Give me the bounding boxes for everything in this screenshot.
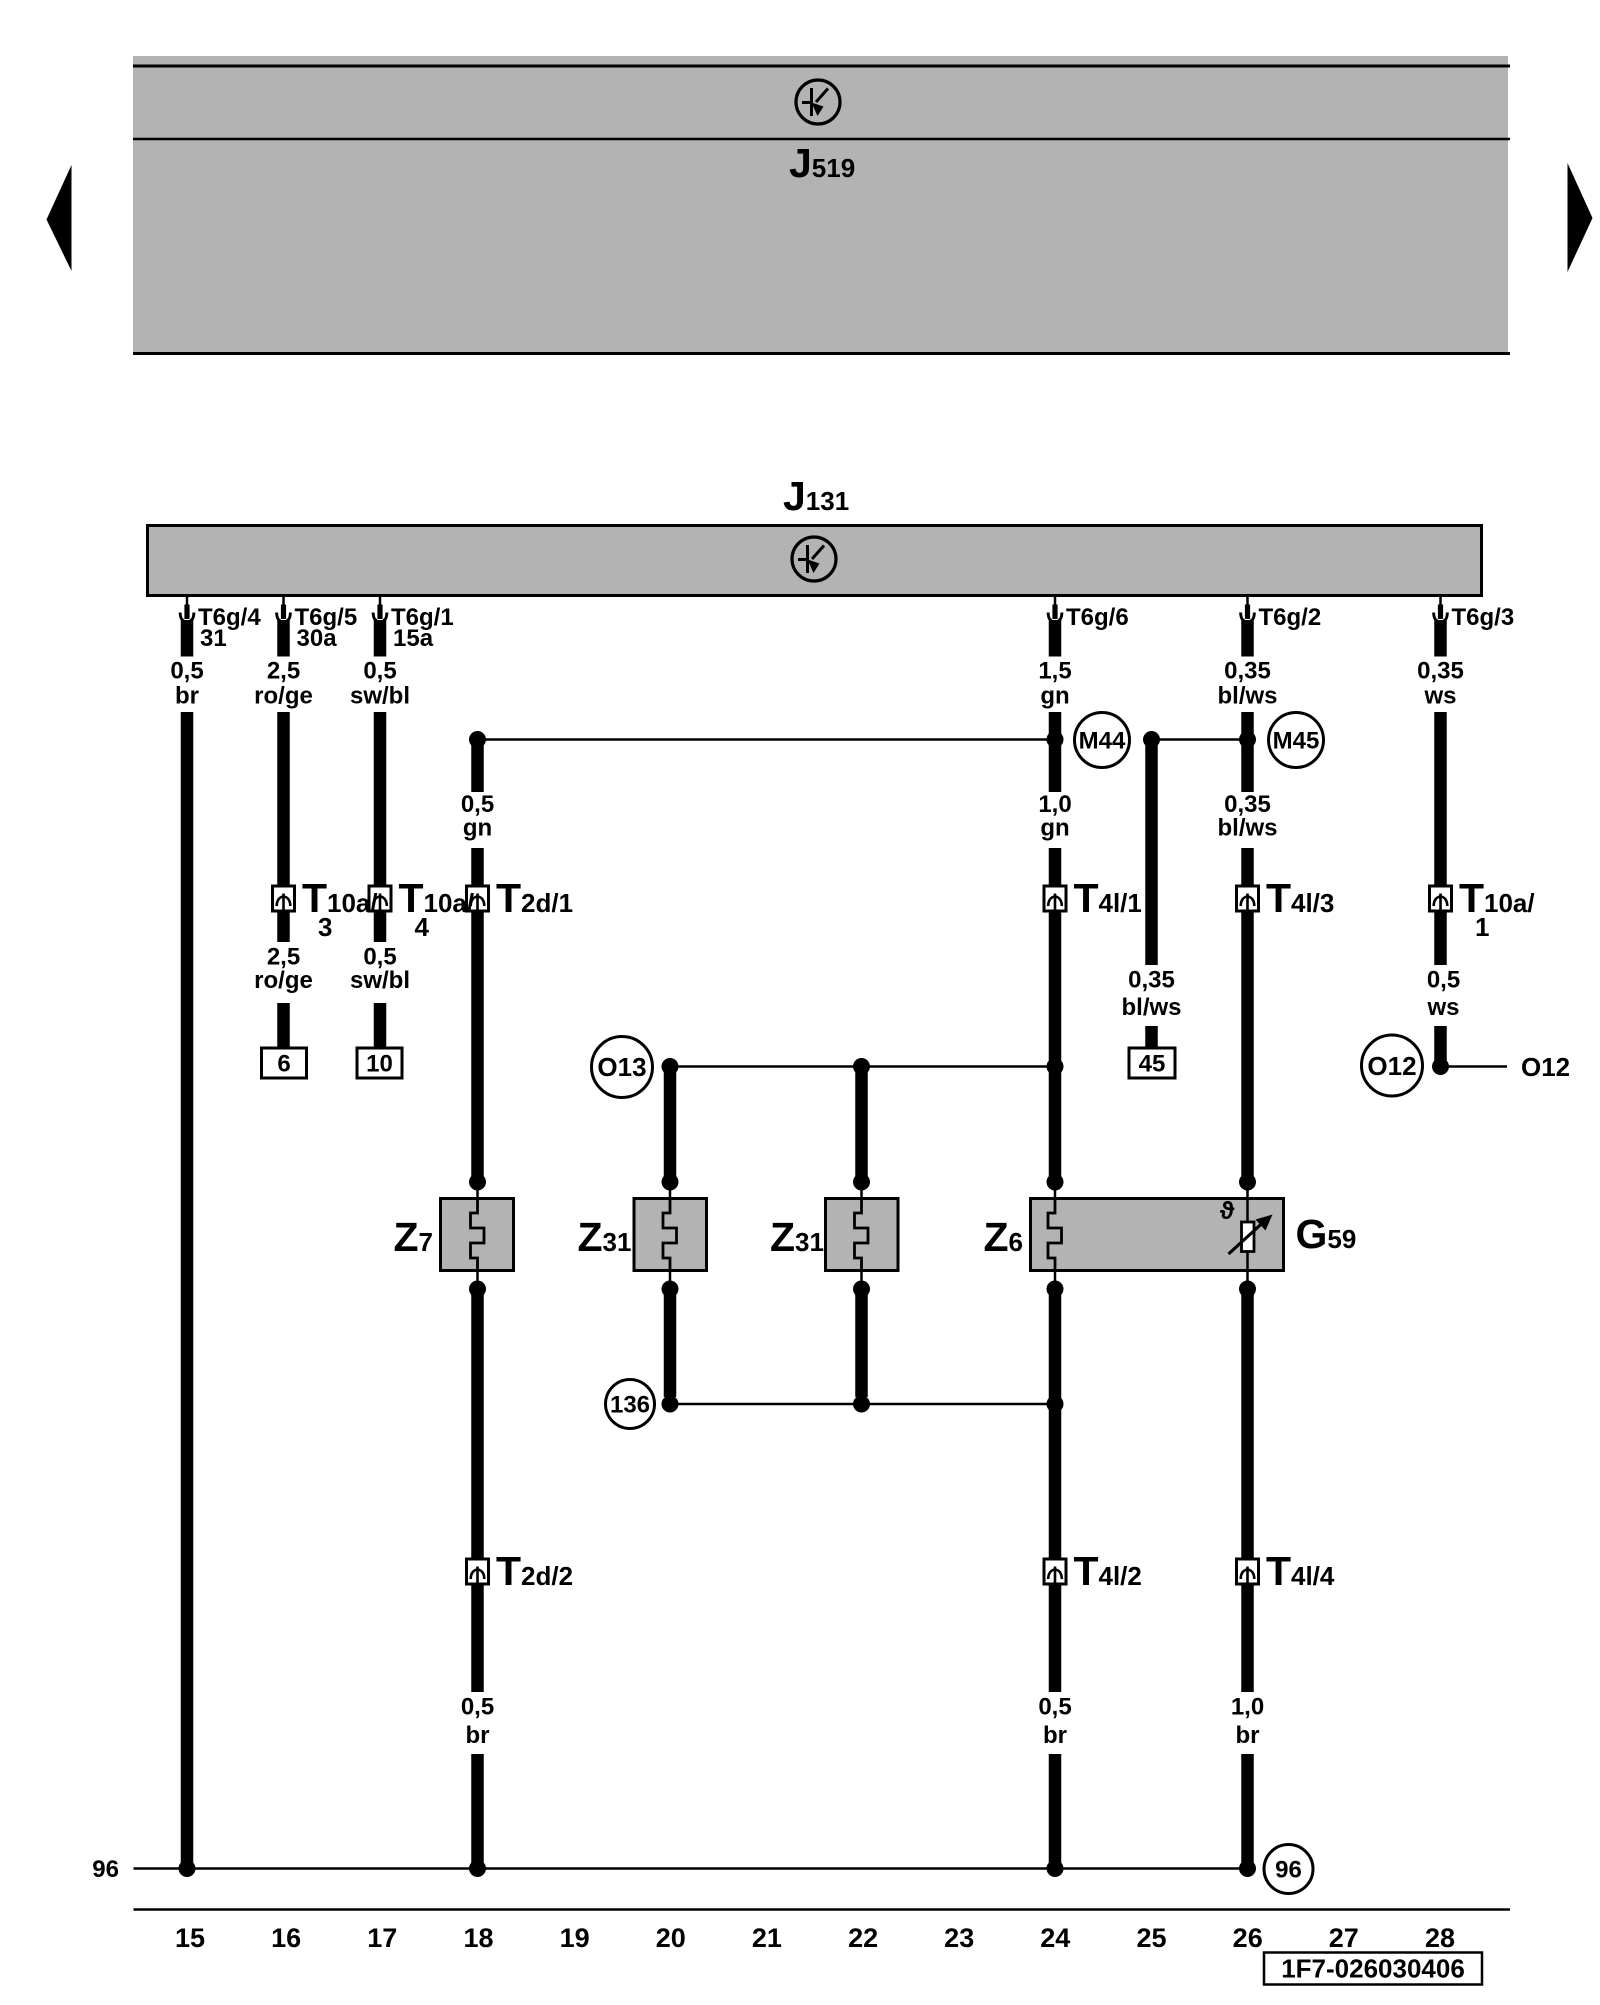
svg-text:ro/ge: ro/ge (254, 967, 313, 994)
svg-text:15: 15 (175, 1923, 205, 1953)
svg-text:25: 25 (1136, 1923, 1166, 1953)
svg-text:T: T (496, 1548, 521, 1594)
svg-text:21: 21 (752, 1923, 782, 1953)
svg-text:gn: gn (463, 815, 492, 842)
svg-text:4l/2: 4l/2 (1099, 1561, 1142, 1591)
svg-text:sw/bl: sw/bl (350, 967, 410, 994)
svg-text:T6g/6: T6g/6 (1066, 604, 1129, 631)
svg-text:J: J (789, 140, 812, 186)
svg-text:4: 4 (415, 912, 430, 942)
svg-text:3: 3 (318, 912, 332, 942)
svg-text:27: 27 (1329, 1923, 1359, 1953)
svg-text:6: 6 (1009, 1227, 1023, 1257)
svg-text:4l/1: 4l/1 (1099, 888, 1142, 918)
svg-text:G: G (1296, 1211, 1328, 1257)
svg-text:bl/ws: bl/ws (1217, 815, 1277, 842)
svg-text:59: 59 (1327, 1224, 1356, 1254)
svg-text:4l/3: 4l/3 (1291, 888, 1334, 918)
svg-text:1: 1 (1475, 912, 1489, 942)
svg-text:ws: ws (1426, 994, 1459, 1021)
svg-text:28: 28 (1425, 1923, 1455, 1953)
svg-text:1,5: 1,5 (1038, 658, 1071, 685)
svg-text:ϑ: ϑ (1220, 1197, 1235, 1225)
svg-text:0,5: 0,5 (1038, 1694, 1071, 1721)
svg-text:26: 26 (1233, 1923, 1263, 1953)
svg-text:T: T (1266, 1548, 1291, 1594)
svg-text:ws: ws (1423, 683, 1456, 710)
svg-text:0,5: 0,5 (461, 1694, 494, 1721)
svg-text:T: T (1074, 1548, 1099, 1594)
svg-text:sw/bl: sw/bl (350, 683, 410, 710)
svg-text:T: T (1074, 875, 1099, 921)
svg-text:16: 16 (271, 1923, 301, 1953)
svg-text:M45: M45 (1273, 728, 1320, 755)
svg-text:18: 18 (463, 1923, 493, 1953)
svg-text:10a/: 10a/ (1484, 888, 1535, 918)
svg-text:O12: O12 (1367, 1051, 1416, 1081)
svg-text:1F7-026030406: 1F7-026030406 (1281, 1954, 1465, 1984)
svg-text:J: J (783, 473, 806, 519)
svg-text:19: 19 (560, 1923, 590, 1953)
svg-text:br: br (1043, 1722, 1067, 1749)
svg-text:Z: Z (770, 1214, 795, 1260)
svg-text:br: br (1236, 1722, 1260, 1749)
svg-text:10a/: 10a/ (424, 888, 475, 918)
svg-text:45: 45 (1139, 1051, 1166, 1078)
svg-text:T: T (496, 875, 521, 921)
svg-text:15a: 15a (393, 625, 434, 652)
svg-text:0,5: 0,5 (363, 658, 396, 685)
svg-text:2d/2: 2d/2 (521, 1561, 573, 1591)
svg-text:6: 6 (277, 1051, 290, 1078)
svg-text:10: 10 (366, 1051, 393, 1078)
svg-text:31: 31 (795, 1227, 824, 1257)
svg-text:31: 31 (200, 625, 227, 652)
svg-text:Z: Z (578, 1214, 603, 1260)
svg-text:2d/1: 2d/1 (521, 888, 573, 918)
svg-text:T: T (1266, 875, 1291, 921)
svg-text:bl/ws: bl/ws (1217, 683, 1277, 710)
svg-text:20: 20 (656, 1923, 686, 1953)
svg-text:br: br (175, 683, 199, 710)
svg-text:519: 519 (812, 153, 855, 183)
svg-text:0,35: 0,35 (1224, 658, 1271, 685)
svg-text:10a/: 10a/ (327, 888, 378, 918)
svg-text:gn: gn (1040, 815, 1069, 842)
svg-text:O13: O13 (597, 1052, 646, 1082)
svg-text:1,0: 1,0 (1231, 1694, 1264, 1721)
svg-text:136: 136 (610, 1392, 650, 1419)
svg-text:23: 23 (944, 1923, 974, 1953)
svg-text:96: 96 (92, 1856, 119, 1883)
svg-text:bl/ws: bl/ws (1121, 994, 1181, 1021)
svg-text:Z: Z (984, 1214, 1009, 1260)
svg-text:gn: gn (1040, 683, 1069, 710)
svg-text:T6g/3: T6g/3 (1452, 604, 1515, 631)
svg-text:0,35: 0,35 (1417, 658, 1464, 685)
svg-text:96: 96 (1275, 1857, 1302, 1884)
svg-text:ro/ge: ro/ge (254, 683, 313, 710)
svg-text:2,5: 2,5 (267, 658, 300, 685)
svg-text:17: 17 (367, 1923, 397, 1953)
svg-text:7: 7 (419, 1227, 433, 1257)
svg-text:131: 131 (806, 486, 849, 516)
svg-text:4l/4: 4l/4 (1291, 1561, 1335, 1591)
svg-text:22: 22 (848, 1923, 878, 1953)
svg-text:0,5: 0,5 (170, 658, 203, 685)
svg-text:30a: 30a (297, 625, 338, 652)
svg-text:T6g/2: T6g/2 (1259, 604, 1322, 631)
svg-text:24: 24 (1040, 1923, 1070, 1953)
svg-text:br: br (466, 1722, 490, 1749)
svg-text:31: 31 (603, 1227, 632, 1257)
svg-text:0,35: 0,35 (1128, 967, 1175, 994)
svg-text:Z: Z (394, 1214, 419, 1260)
svg-text:O12: O12 (1521, 1052, 1570, 1082)
svg-text:M44: M44 (1079, 728, 1126, 755)
svg-text:0,5: 0,5 (1427, 967, 1460, 994)
